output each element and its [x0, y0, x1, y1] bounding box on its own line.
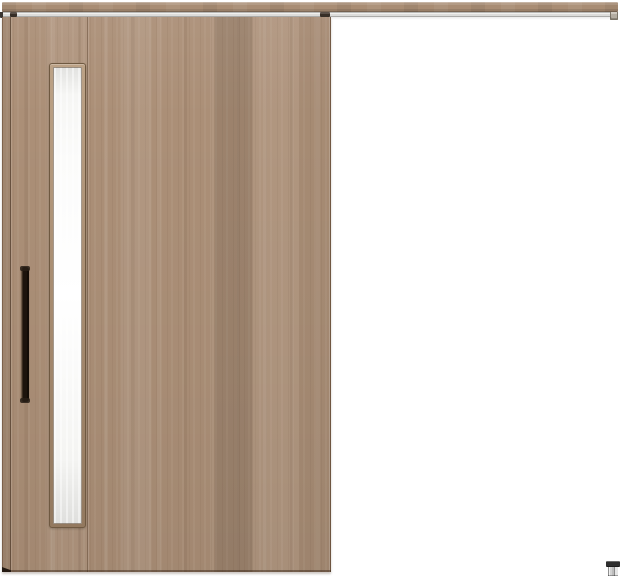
door-right-edge	[329, 17, 331, 572]
floor-guide	[606, 561, 620, 576]
stile-joint-left	[10, 17, 11, 572]
glass-insert-frame	[49, 63, 86, 528]
sliding-door-scene	[0, 0, 620, 576]
door-left-edge	[2, 17, 3, 572]
door-bottom-edge-shadow	[2, 570, 331, 572]
glass-pane	[53, 67, 82, 524]
hanging-rail-wood-fascia	[2, 2, 618, 12]
stile-joint-glass-right	[87, 17, 88, 572]
track-shadow	[331, 17, 612, 20]
door-handle-bar	[21, 267, 29, 402]
floor-guide-body	[608, 567, 618, 576]
sliding-door-panel	[2, 17, 331, 572]
